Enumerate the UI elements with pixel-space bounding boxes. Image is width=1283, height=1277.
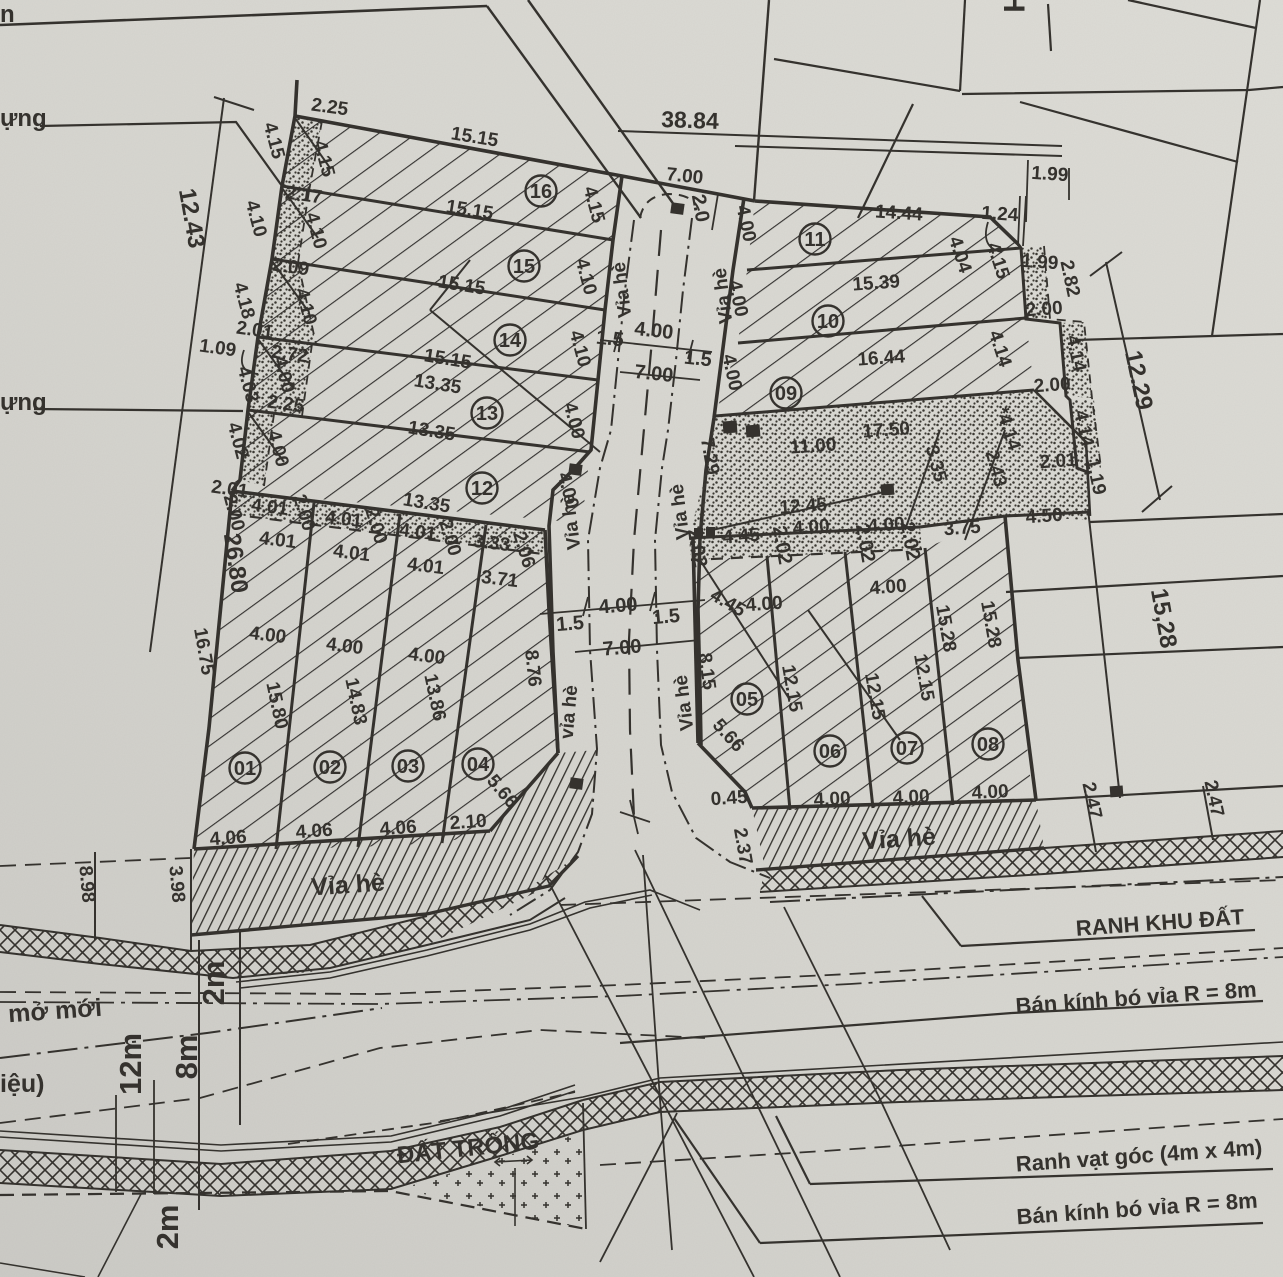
svg-text:4.00: 4.00: [745, 593, 783, 617]
svg-text:2.00: 2.00: [1025, 298, 1063, 322]
svg-text:09: 09: [775, 383, 797, 405]
svg-text:Vỉa hè: Vỉa hè: [861, 822, 937, 855]
svg-text:4.00: 4.00: [792, 516, 830, 540]
svg-text:Vỉa hè: Vỉa hè: [310, 868, 386, 901]
svg-text:07: 07: [896, 738, 918, 760]
svg-text:11: 11: [804, 229, 825, 251]
svg-text:4.00: 4.00: [248, 623, 287, 648]
svg-text:2.10: 2.10: [449, 811, 487, 835]
svg-text:ựng: ựng: [0, 389, 47, 416]
svg-text:4.45: 4.45: [722, 525, 761, 549]
svg-text:2.00: 2.00: [1033, 374, 1071, 398]
svg-text:H: H: [997, 0, 1030, 13]
svg-text:n: n: [0, 1, 15, 28]
svg-text:4.00: 4.00: [971, 781, 1009, 804]
svg-text:2m: 2m: [196, 961, 231, 1006]
svg-text:15.39: 15.39: [852, 271, 901, 295]
svg-text:15: 15: [513, 256, 535, 278]
svg-text:04: 04: [467, 754, 490, 776]
svg-text:1.5: 1.5: [683, 347, 713, 372]
svg-text:02: 02: [319, 757, 341, 779]
svg-text:38.84: 38.84: [661, 106, 720, 134]
svg-text:1.5: 1.5: [651, 605, 681, 629]
svg-text:14: 14: [499, 330, 522, 352]
svg-text:4.00: 4.00: [407, 644, 446, 669]
svg-text:2.01: 2.01: [1039, 450, 1078, 474]
svg-text:12m: 12m: [113, 1033, 148, 1095]
svg-text:12: 12: [471, 478, 493, 500]
svg-text:01: 01: [234, 758, 256, 780]
svg-text:ựng: ựng: [0, 105, 47, 132]
svg-text:17.50: 17.50: [862, 418, 911, 442]
svg-text:03: 03: [397, 756, 419, 778]
svg-text:4.00: 4.00: [633, 318, 674, 344]
svg-text:10: 10: [817, 311, 839, 333]
svg-text:3.33: 3.33: [472, 531, 511, 556]
svg-text:0.45: 0.45: [710, 787, 749, 811]
svg-text:16: 16: [530, 181, 552, 203]
svg-text:1.5: 1.5: [555, 612, 585, 636]
svg-text:2m: 2m: [150, 1205, 185, 1250]
svg-text:11.00: 11.00: [789, 434, 837, 458]
svg-text:16.44: 16.44: [857, 346, 906, 370]
svg-text:1.99: 1.99: [1031, 163, 1069, 187]
svg-text:iệu): iệu): [0, 1070, 44, 1098]
svg-text:3.98: 3.98: [164, 865, 188, 904]
svg-text:4.00: 4.00: [325, 634, 364, 659]
svg-text:14.44: 14.44: [874, 201, 923, 225]
svg-text:06: 06: [819, 741, 841, 763]
svg-text:8.76: 8.76: [520, 649, 545, 688]
svg-text:08: 08: [977, 734, 999, 756]
svg-text:8m: 8m: [169, 1035, 204, 1080]
svg-text:1.5: 1.5: [595, 327, 625, 352]
svg-text:4.00: 4.00: [598, 593, 639, 618]
svg-text:4.50: 4.50: [1025, 505, 1063, 529]
svg-text:4.06: 4.06: [295, 820, 333, 844]
svg-text:05: 05: [736, 689, 758, 711]
svg-text:13: 13: [476, 403, 498, 425]
svg-text:4.00: 4.00: [869, 576, 907, 600]
